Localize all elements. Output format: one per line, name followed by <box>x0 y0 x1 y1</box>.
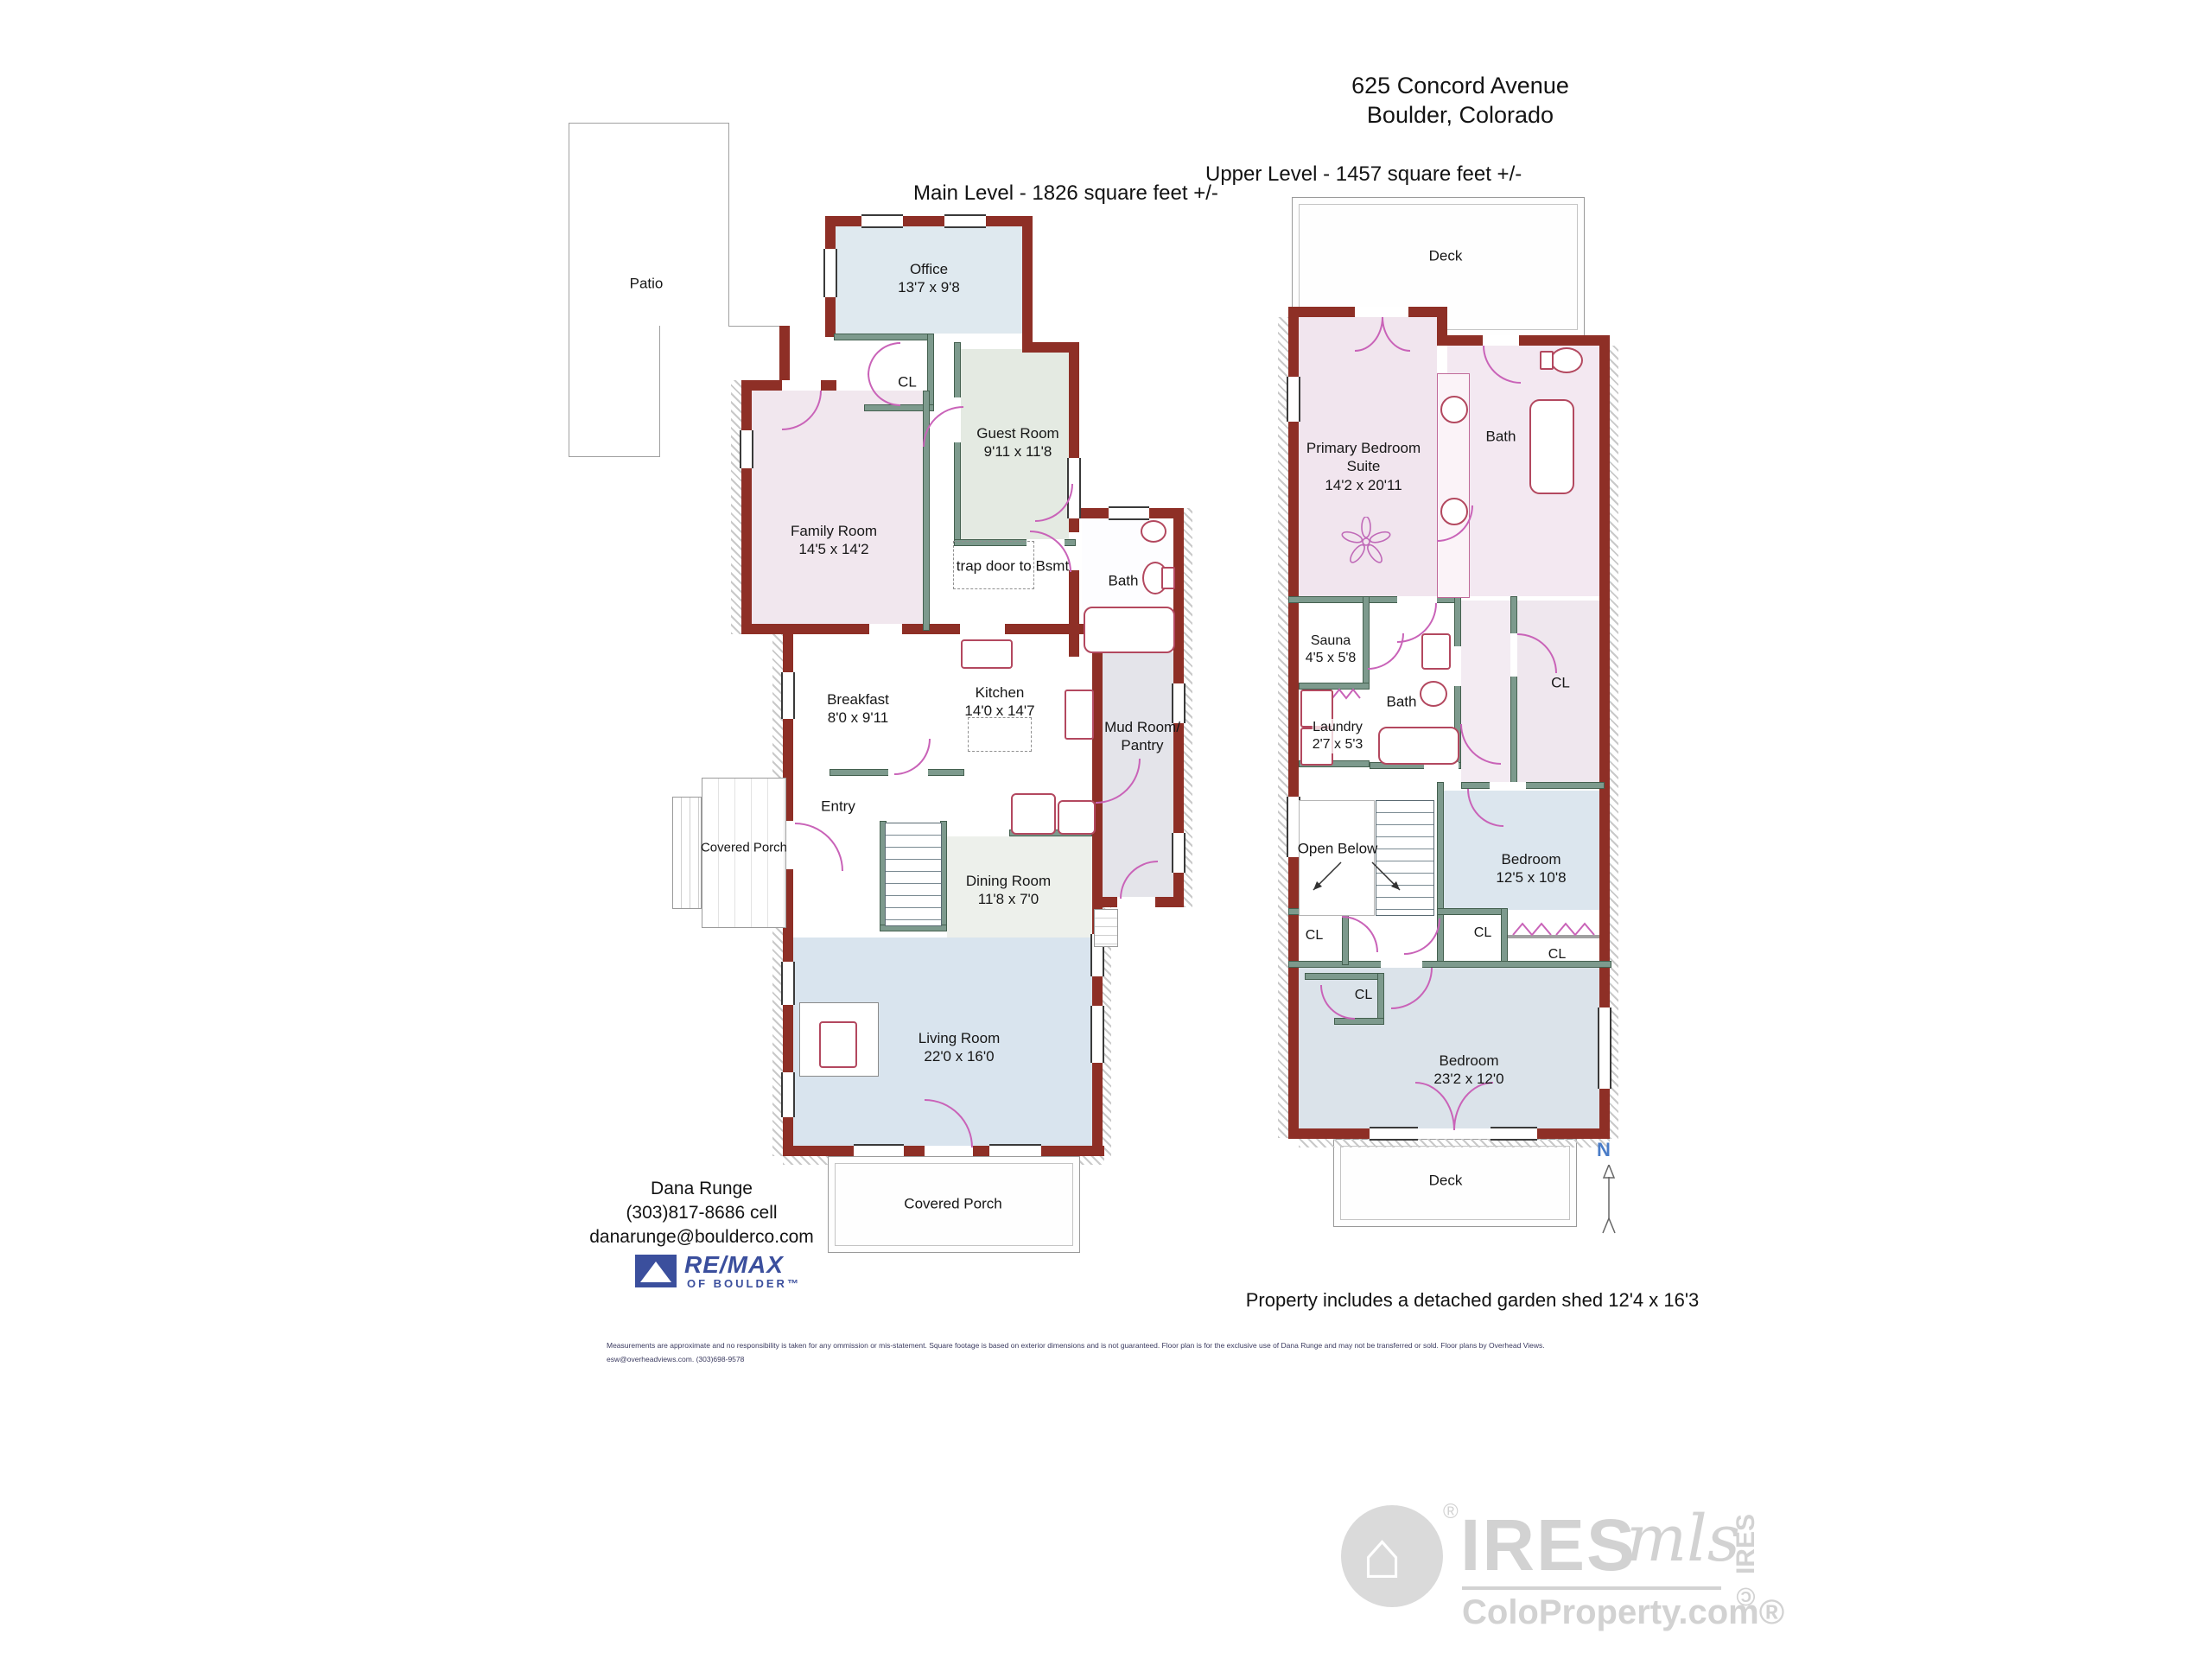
window <box>823 249 837 297</box>
window <box>1090 1006 1104 1063</box>
room-label-primary: Primary BedroomSuite14'2 x 20'11 <box>1306 439 1421 494</box>
kitchen-sink-icon <box>961 639 1013 669</box>
door-arc <box>1404 918 1440 955</box>
property-note: Property includes a detached garden shed… <box>1246 1289 1700 1312</box>
room-label-covered-porch-west: Covered Porch <box>701 841 787 857</box>
ceiling-fan-icon <box>1341 517 1391 567</box>
door-opening <box>1510 633 1517 677</box>
accordion-door-icon <box>1555 921 1595 937</box>
interior-wall <box>1334 1018 1384 1025</box>
agent-email: danarunge@boulderco.com <box>589 1227 814 1248</box>
disclaimer-line-2: esw@overheadviews.com. (303)698-9578 <box>607 1355 744 1363</box>
toilet-icon <box>1420 681 1447 707</box>
toilet-tank-icon <box>1161 567 1175 589</box>
staircase-main <box>885 823 942 926</box>
patio-edge <box>569 123 569 457</box>
remax-office: OF BOULDER™ <box>687 1277 801 1290</box>
fireplace-box-icon <box>819 1021 857 1068</box>
interior-wall <box>1437 782 1444 968</box>
ires-circle-icon: ⌂ <box>1341 1505 1443 1607</box>
cabinet-icon <box>1058 800 1096 835</box>
window <box>781 672 795 719</box>
ires-watermark: ⌂ ® IRES mls ColoProperty.com® © IRES <box>1341 1497 1773 1643</box>
room-label-kitchen: Kitchen14'0 x 14'7 <box>964 683 1034 721</box>
window <box>1598 1007 1611 1089</box>
toilet-icon <box>1550 347 1583 373</box>
address-line-1: 625 Concord Avenue <box>1351 73 1569 99</box>
disclaimer-line-1: Measurements are approximate and no resp… <box>607 1341 1545 1350</box>
door-opening <box>1454 646 1461 686</box>
room-label-mud-room: Mud Room/Pantry <box>1104 718 1180 755</box>
room-label-open-below: Open Below <box>1298 839 1378 857</box>
ires-registered-mark: ® <box>1443 1500 1459 1524</box>
mud-room-steps <box>1094 909 1118 947</box>
floor-plan-sheet: 625 Concord Avenue Boulder, Colorado Mai… <box>0 0 2212 1659</box>
north-arrow-icon <box>1599 1165 1619 1234</box>
room-label-sauna: Sauna4'5 x 5'8 <box>1306 632 1357 667</box>
kitchen-island <box>968 717 1032 752</box>
window <box>781 962 795 1005</box>
door-opening <box>1397 596 1437 603</box>
room-label-deck-north: Deck <box>1429 246 1463 264</box>
window <box>861 214 903 228</box>
mls-script-text: mls <box>1626 1502 1740 1576</box>
wall-segment <box>1437 335 1610 346</box>
room-label-closet-left: CL <box>1306 927 1323 944</box>
door-opening <box>1355 307 1408 317</box>
room-label-deck-south: Deck <box>1429 1171 1463 1189</box>
room-label-closet-mid: CL <box>1474 925 1491 942</box>
window <box>1109 506 1149 520</box>
room-label-living: Living Room22'0 x 16'0 <box>918 1029 1001 1066</box>
cabinet-icon <box>1011 793 1056 835</box>
interior-wall <box>1510 596 1517 785</box>
door-opening <box>1490 782 1526 789</box>
family-room <box>752 391 923 624</box>
wall-segment <box>741 624 1087 634</box>
agent-name: Dana Runge <box>651 1179 753 1199</box>
room-label-dining: Dining Room11'8 x 7'0 <box>966 872 1051 909</box>
room-label-closet-big: CL <box>1551 673 1570 691</box>
room-label-cl: CL <box>898 372 917 391</box>
window <box>944 214 986 228</box>
room-label-entry: Entry <box>821 797 855 815</box>
toilet-tank-icon <box>1540 351 1554 370</box>
window <box>1491 1127 1537 1141</box>
room-label-bath-north: Bath <box>1486 427 1516 445</box>
door-arc <box>795 823 843 871</box>
wall-segment <box>1069 570 1079 657</box>
upper-level-title: Upper Level - 1457 square feet +/- <box>1205 162 1522 187</box>
window <box>1370 1127 1418 1141</box>
door-arc <box>868 342 900 375</box>
patio-edge <box>728 326 782 327</box>
interior-wall <box>1305 973 1384 980</box>
wall-hatching <box>731 380 741 634</box>
north-label: N <box>1597 1139 1611 1161</box>
patio-edge <box>569 123 729 124</box>
room-label-family: Family Room14'5 x 14'2 <box>791 522 877 559</box>
remax-peak-shape <box>640 1262 671 1282</box>
accordion-door-icon <box>1512 921 1552 937</box>
room-label-bath: Bath <box>1109 571 1139 589</box>
sink-icon <box>1141 520 1166 543</box>
open-below-arrow <box>1365 861 1408 899</box>
ires-brand-text: IRES <box>1460 1503 1637 1587</box>
wall-hatching <box>1299 1139 1610 1147</box>
house-icon: ⌂ <box>1362 1521 1402 1588</box>
watermark-underline <box>1462 1586 1721 1590</box>
window <box>781 1072 795 1117</box>
door-opening <box>1381 961 1422 968</box>
patio-edge <box>569 456 660 457</box>
door-arc <box>1368 633 1404 670</box>
bathtub-icon <box>1529 399 1574 494</box>
address-line-2: Boulder, Colorado <box>1367 102 1554 129</box>
bath-room-north <box>1447 346 1599 596</box>
room-label-guest: Guest Room9'11 x 11'8 <box>976 424 1058 461</box>
door-arc <box>1342 916 1378 952</box>
wall-segment <box>1022 216 1033 347</box>
room-label-bedroom-2: Bedroom23'2 x 12'0 <box>1433 1052 1503 1089</box>
window <box>1172 833 1185 873</box>
open-below-arrow <box>1305 861 1348 899</box>
door-opening <box>782 380 821 391</box>
sink-icon <box>1421 633 1451 670</box>
ires-copyright-text: © IRES <box>1732 1514 1761 1610</box>
patio-edge <box>659 326 660 456</box>
stove-icon <box>1065 690 1094 740</box>
room-label-trap-door: trap door to Bsmt <box>957 556 1069 575</box>
interior-wall <box>1501 908 1508 967</box>
door-opening <box>1483 335 1519 346</box>
patio-edge <box>728 123 729 327</box>
interior-wall <box>1377 973 1384 1023</box>
room-label-bedroom-1: Bedroom12'5 x 10'8 <box>1496 850 1566 887</box>
remax-brand: RE/MAX <box>684 1251 784 1279</box>
room-label-covered-porch-south: Covered Porch <box>904 1194 1001 1212</box>
window <box>1287 377 1300 422</box>
room-label-bath-middle: Bath <box>1387 692 1417 710</box>
door-opening <box>960 624 1005 634</box>
wall-segment <box>825 216 1033 226</box>
bathtub-icon <box>1378 727 1459 765</box>
room-label-closet-right: CL <box>1548 946 1566 963</box>
room-label-office: Office13'7 x 9'8 <box>898 260 960 297</box>
room-label-closet-small: CL <box>1355 987 1372 1004</box>
bifold-door-icon <box>1332 688 1361 700</box>
interior-wall <box>1461 782 1605 789</box>
porch-steps <box>672 797 702 909</box>
room-label-laundry: Laundry2'7 x 5'3 <box>1313 719 1363 753</box>
door-opening <box>869 624 902 634</box>
interior-wall <box>1437 908 1508 915</box>
agent-phone: (303)817-8686 cell <box>626 1203 777 1224</box>
room-label-patio: Patio <box>630 274 664 292</box>
wall-hatching <box>1278 317 1288 1138</box>
room-label-breakfast: Breakfast8'0 x 9'11 <box>827 690 889 728</box>
sink-icon <box>1440 396 1468 423</box>
window <box>740 430 753 468</box>
bathtub-icon <box>1084 607 1175 653</box>
interior-wall <box>834 334 934 340</box>
remax-logo-icon <box>635 1255 677 1287</box>
wall-segment <box>741 380 752 634</box>
wall-segment <box>1288 307 1299 1139</box>
main-level-title: Main Level - 1826 square feet +/- <box>913 181 1218 206</box>
